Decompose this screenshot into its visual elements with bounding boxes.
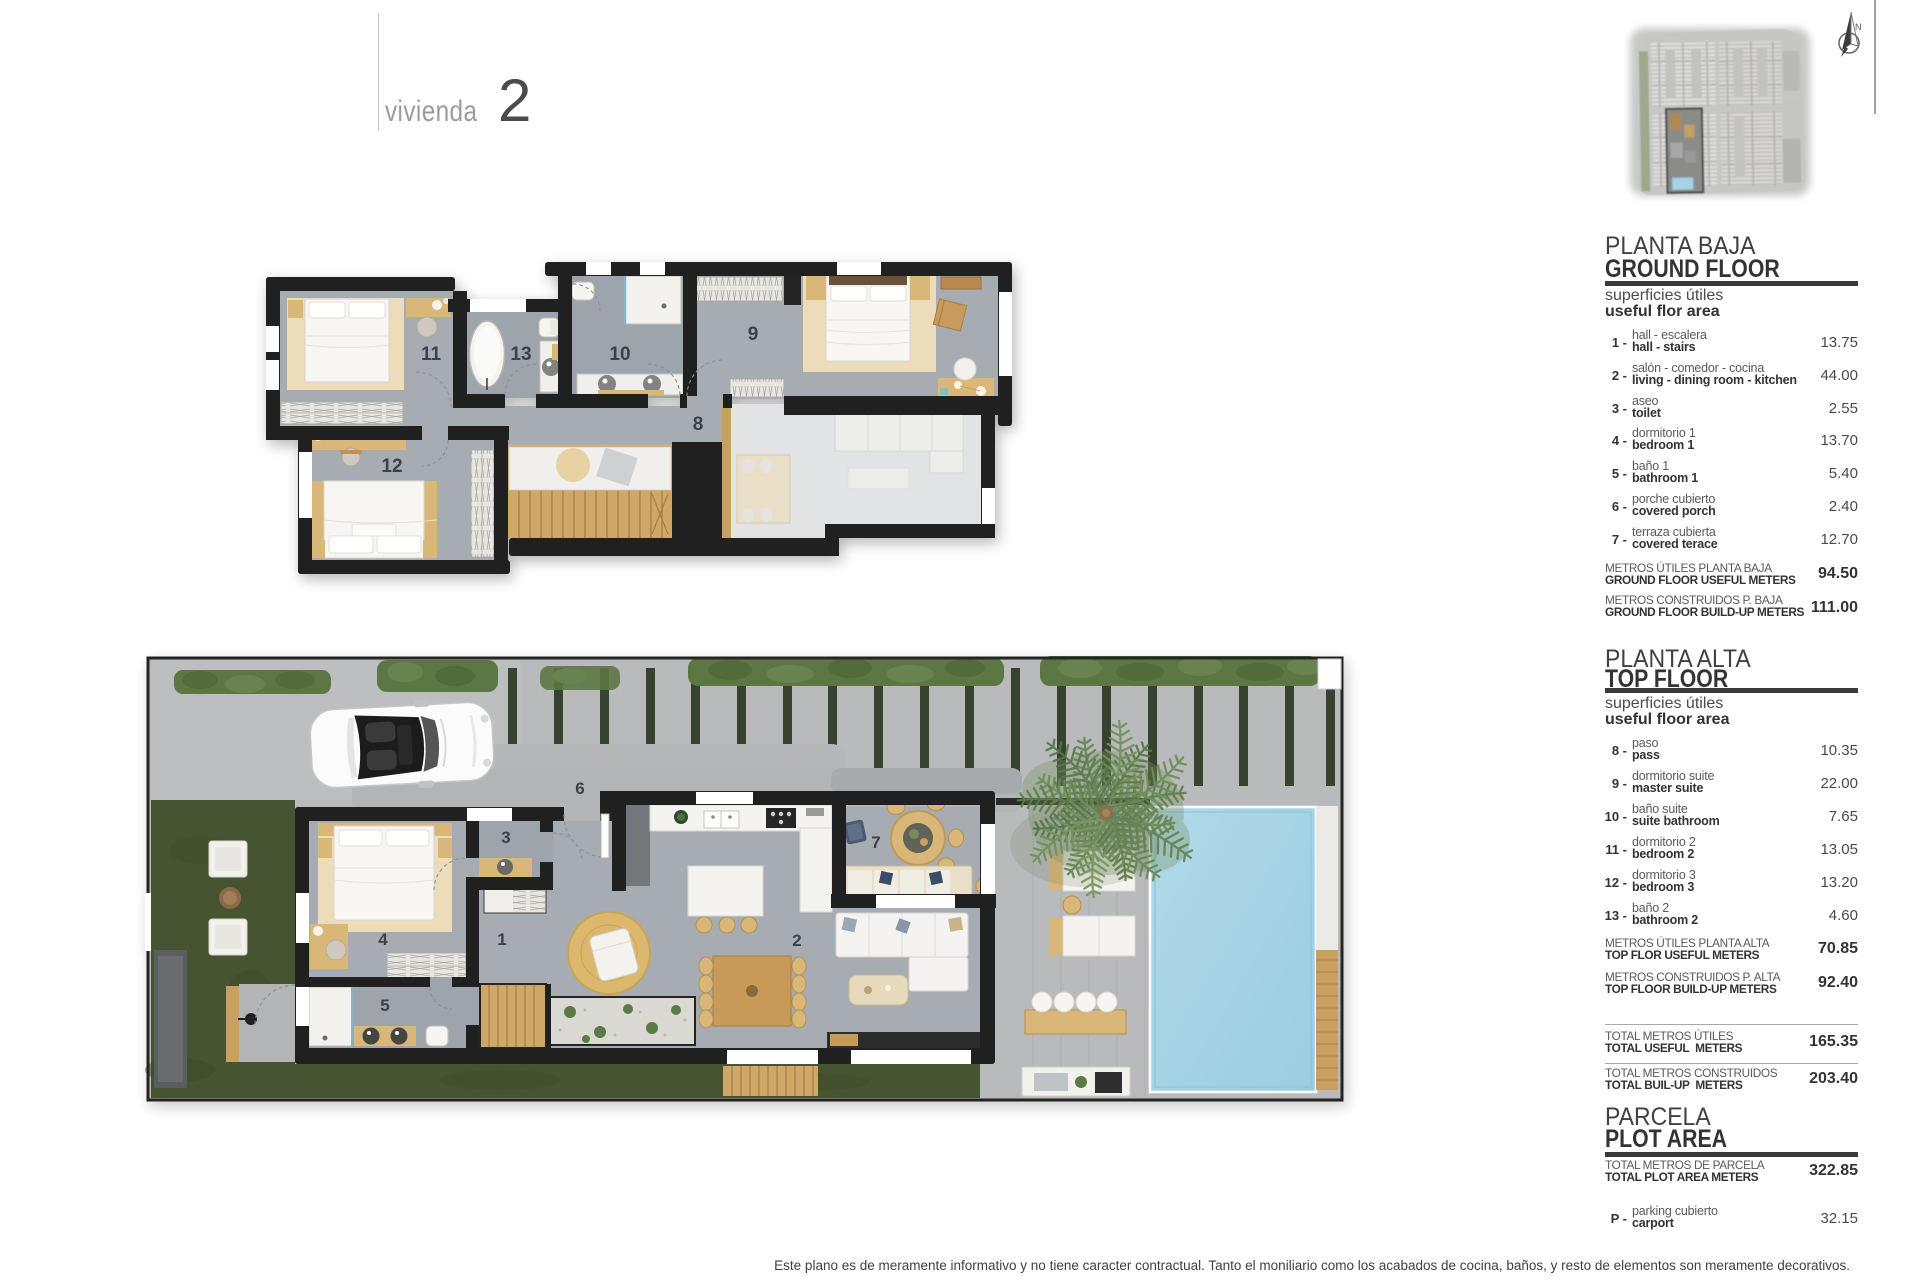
- svg-text:11: 11: [421, 344, 442, 365]
- svg-text:3: 3: [501, 828, 510, 847]
- svg-text:5: 5: [380, 996, 389, 1015]
- svg-text:6: 6: [575, 779, 584, 798]
- svg-text:N: N: [1855, 22, 1862, 32]
- svg-text:1: 1: [497, 930, 506, 949]
- svg-text:2: 2: [792, 931, 801, 950]
- svg-text:13: 13: [510, 344, 531, 365]
- svg-text:4: 4: [378, 930, 388, 949]
- svg-text:7: 7: [871, 833, 880, 852]
- svg-text:10: 10: [609, 344, 630, 365]
- svg-text:9: 9: [748, 324, 759, 345]
- svg-text:12: 12: [381, 456, 402, 477]
- svg-text:8: 8: [693, 414, 704, 435]
